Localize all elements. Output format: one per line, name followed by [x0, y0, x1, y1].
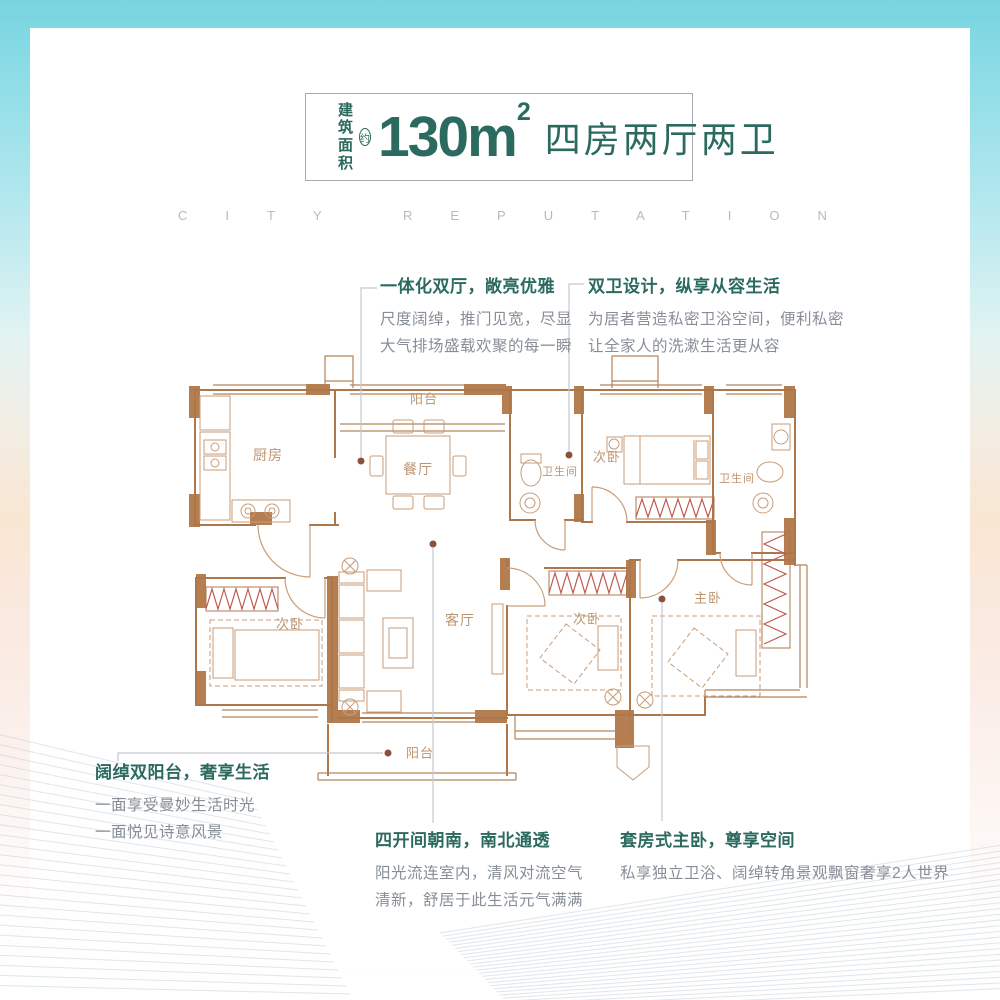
callout-suite-master: 套房式主卧，尊享空间 私享独立卫浴、阔绰转角景观飘窗奢享2人世界 — [620, 826, 949, 887]
callout-title: 四开间朝南，南北通透 — [375, 826, 583, 851]
area-exponent: 2 — [517, 98, 531, 127]
area-header-box: 建筑 面积 约 130m 2 四房两厅两卫 — [305, 93, 693, 181]
room-label-kitchen: 厨房 — [253, 445, 283, 465]
callout-title: 双卫设计，纵享从容生活 — [588, 272, 844, 297]
callout-line: 尺度阔绰，推门见宽，尽显 — [380, 306, 572, 333]
room-label-bedroom-3: 次卧 — [276, 614, 304, 633]
callout-line: 阳光流连室内，清风对流空气 — [375, 860, 583, 887]
callout-line: 让全家人的洗漱生活更从容 — [588, 333, 844, 360]
callout-dual-bathrooms: 双卫设计，纵享从容生活 为居者营造私密卫浴空间，便利私密 让全家人的洗漱生活更从… — [588, 272, 844, 360]
room-label-master-bedroom: 主卧 — [694, 588, 722, 607]
watermark-text: CITY REPUTATION — [178, 208, 865, 223]
callout-dual-balconies: 阔绰双阳台，奢享生活 一面享受曼妙生活时光 一面悦见诗意风景 — [95, 758, 270, 846]
room-label-bedroom-4: 次卧 — [573, 609, 601, 628]
callout-south-facing: 四开间朝南，南北通透 阳光流连室内，清风对流空气 清新，舒居于此生活元气满满 — [375, 826, 583, 914]
callout-dual-hall: 一体化双厅，敞亮优雅 尺度阔绰，推门见宽，尽显 大气排场盛载欢聚的每一瞬 — [380, 272, 572, 360]
callout-line: 一面享受曼妙生活时光 — [95, 792, 270, 819]
callout-line: 为居者营造私密卫浴空间，便利私密 — [588, 306, 844, 333]
approx-badge: 约 — [359, 128, 371, 146]
callout-line: 一面悦见诗意风景 — [95, 819, 270, 846]
layout-text: 四房两厅两卫 — [545, 111, 779, 163]
callout-title: 阔绰双阳台，奢享生活 — [95, 758, 270, 783]
room-label-bathroom-1: 卫生间 — [542, 463, 578, 479]
area-label-line2: 面积 — [338, 137, 354, 172]
room-label-bathroom-2: 卫生间 — [719, 470, 755, 486]
callout-line: 大气排场盛载欢聚的每一瞬 — [380, 333, 572, 360]
area-label-line1: 建筑 — [338, 102, 354, 137]
area-value: 130m — [378, 109, 516, 166]
room-label-balcony-top: 阳台 — [410, 389, 438, 408]
callout-title: 一体化双厅，敞亮优雅 — [380, 272, 572, 297]
callout-line: 清新，舒居于此生活元气满满 — [375, 887, 583, 914]
area-label: 建筑 面积 — [338, 102, 354, 173]
room-label-dining: 餐厅 — [403, 459, 433, 479]
callout-title: 套房式主卧，尊享空间 — [620, 826, 949, 851]
room-label-balcony-bottom: 阳台 — [406, 743, 434, 762]
room-label-bedroom-2: 次卧 — [593, 447, 621, 466]
room-label-living: 客厅 — [445, 610, 475, 630]
poster-page: 建筑 面积 约 130m 2 四房两厅两卫 CITY REPUTATION 一体… — [0, 0, 1000, 1000]
callout-line: 私享独立卫浴、阔绰转角景观飘窗奢享2人世界 — [620, 860, 949, 887]
